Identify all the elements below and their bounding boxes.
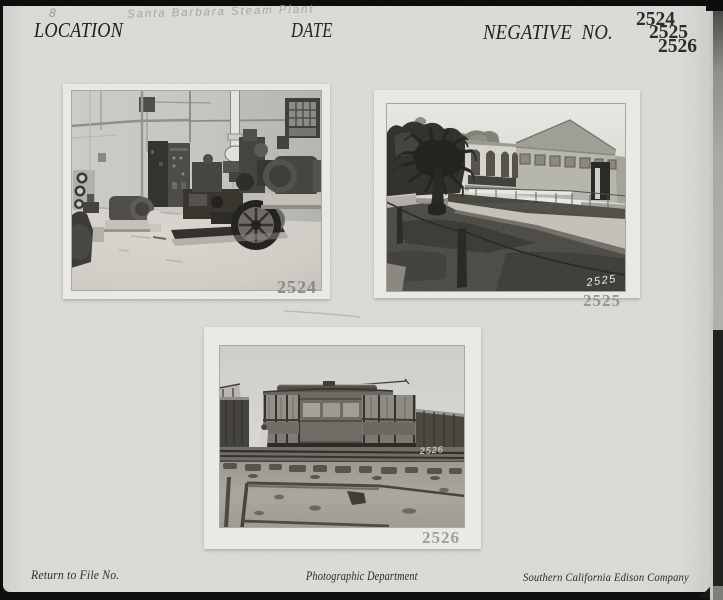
- svg-text:2526: 2526: [418, 444, 444, 456]
